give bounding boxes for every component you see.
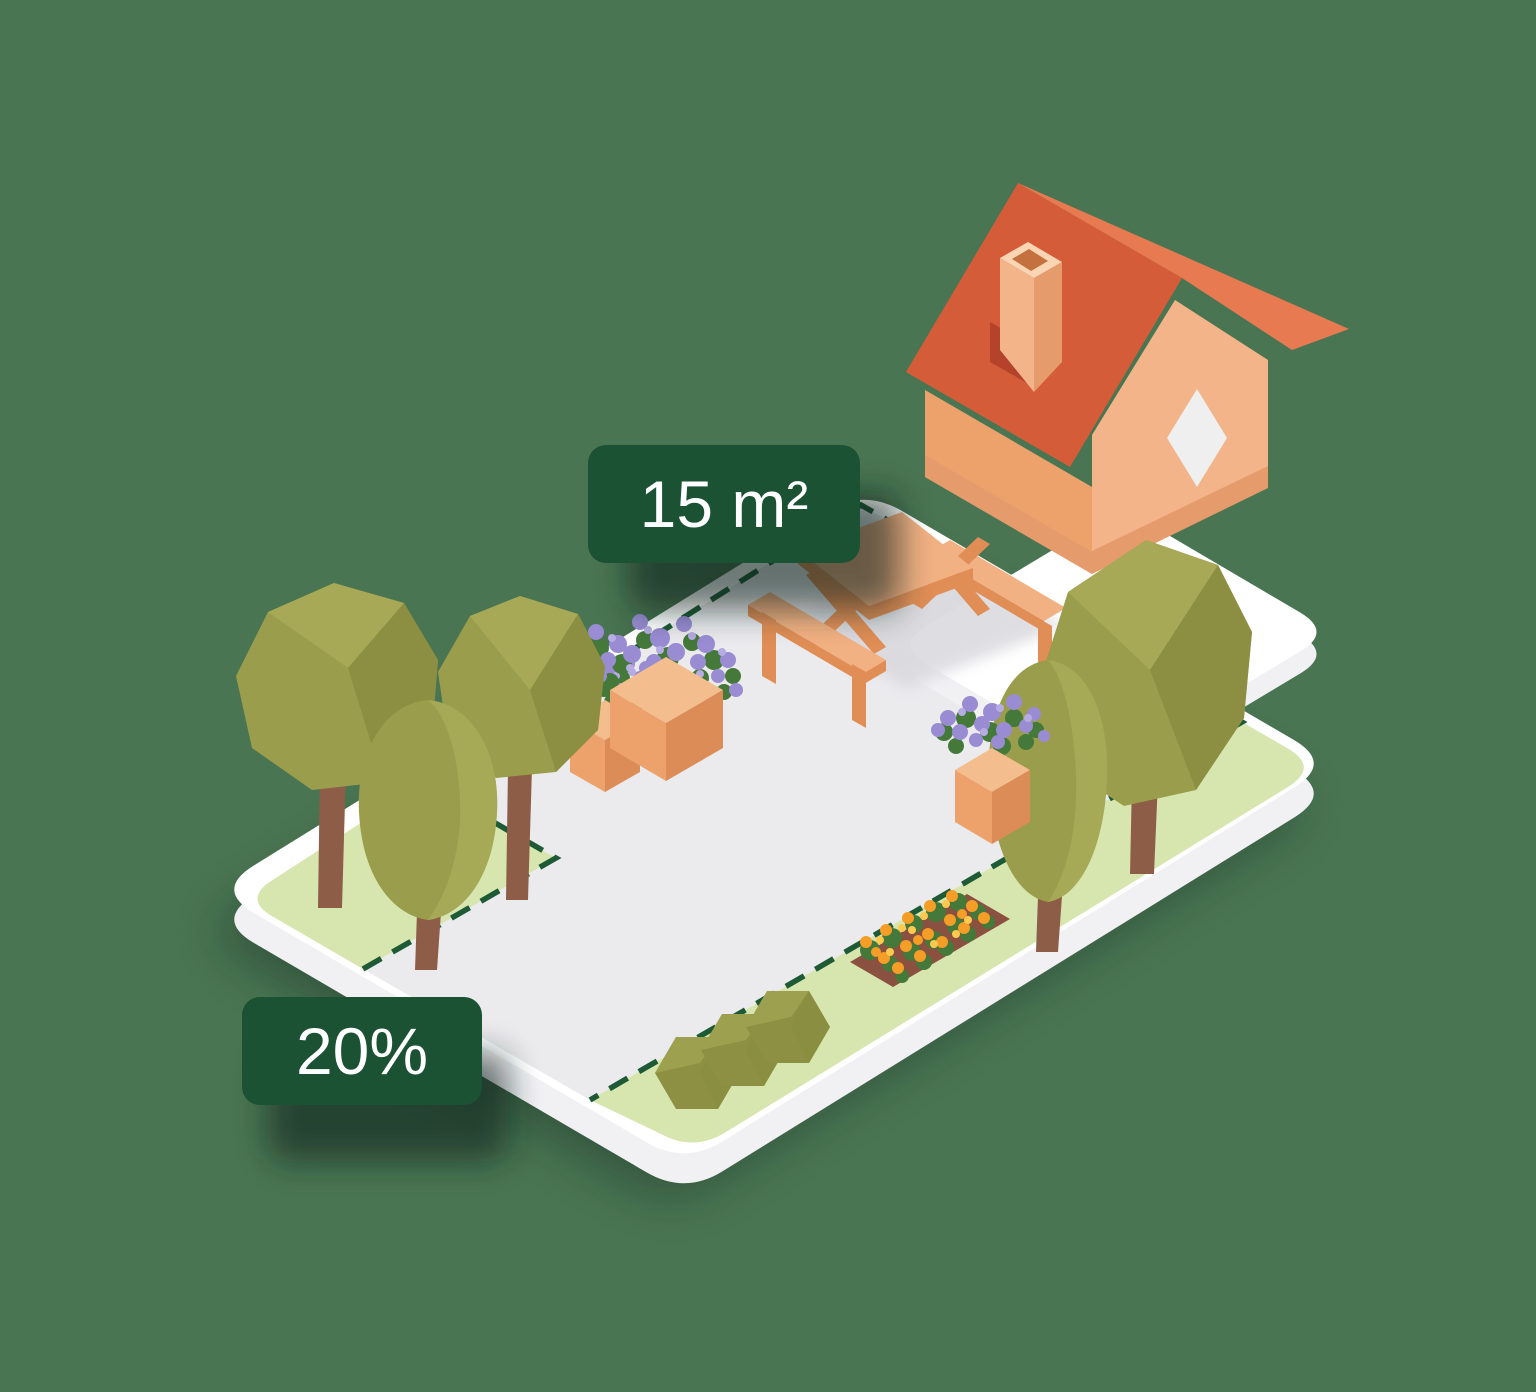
scene-svg: 15 m² 20% bbox=[0, 0, 1536, 1392]
label-coverage-text: 20% bbox=[296, 1014, 428, 1088]
garden-illustration: 15 m² 20% bbox=[0, 0, 1536, 1392]
label-coverage: 20% bbox=[242, 997, 508, 1161]
label-area-text: 15 m² bbox=[640, 467, 809, 541]
label-area: 15 m² bbox=[588, 445, 900, 611]
